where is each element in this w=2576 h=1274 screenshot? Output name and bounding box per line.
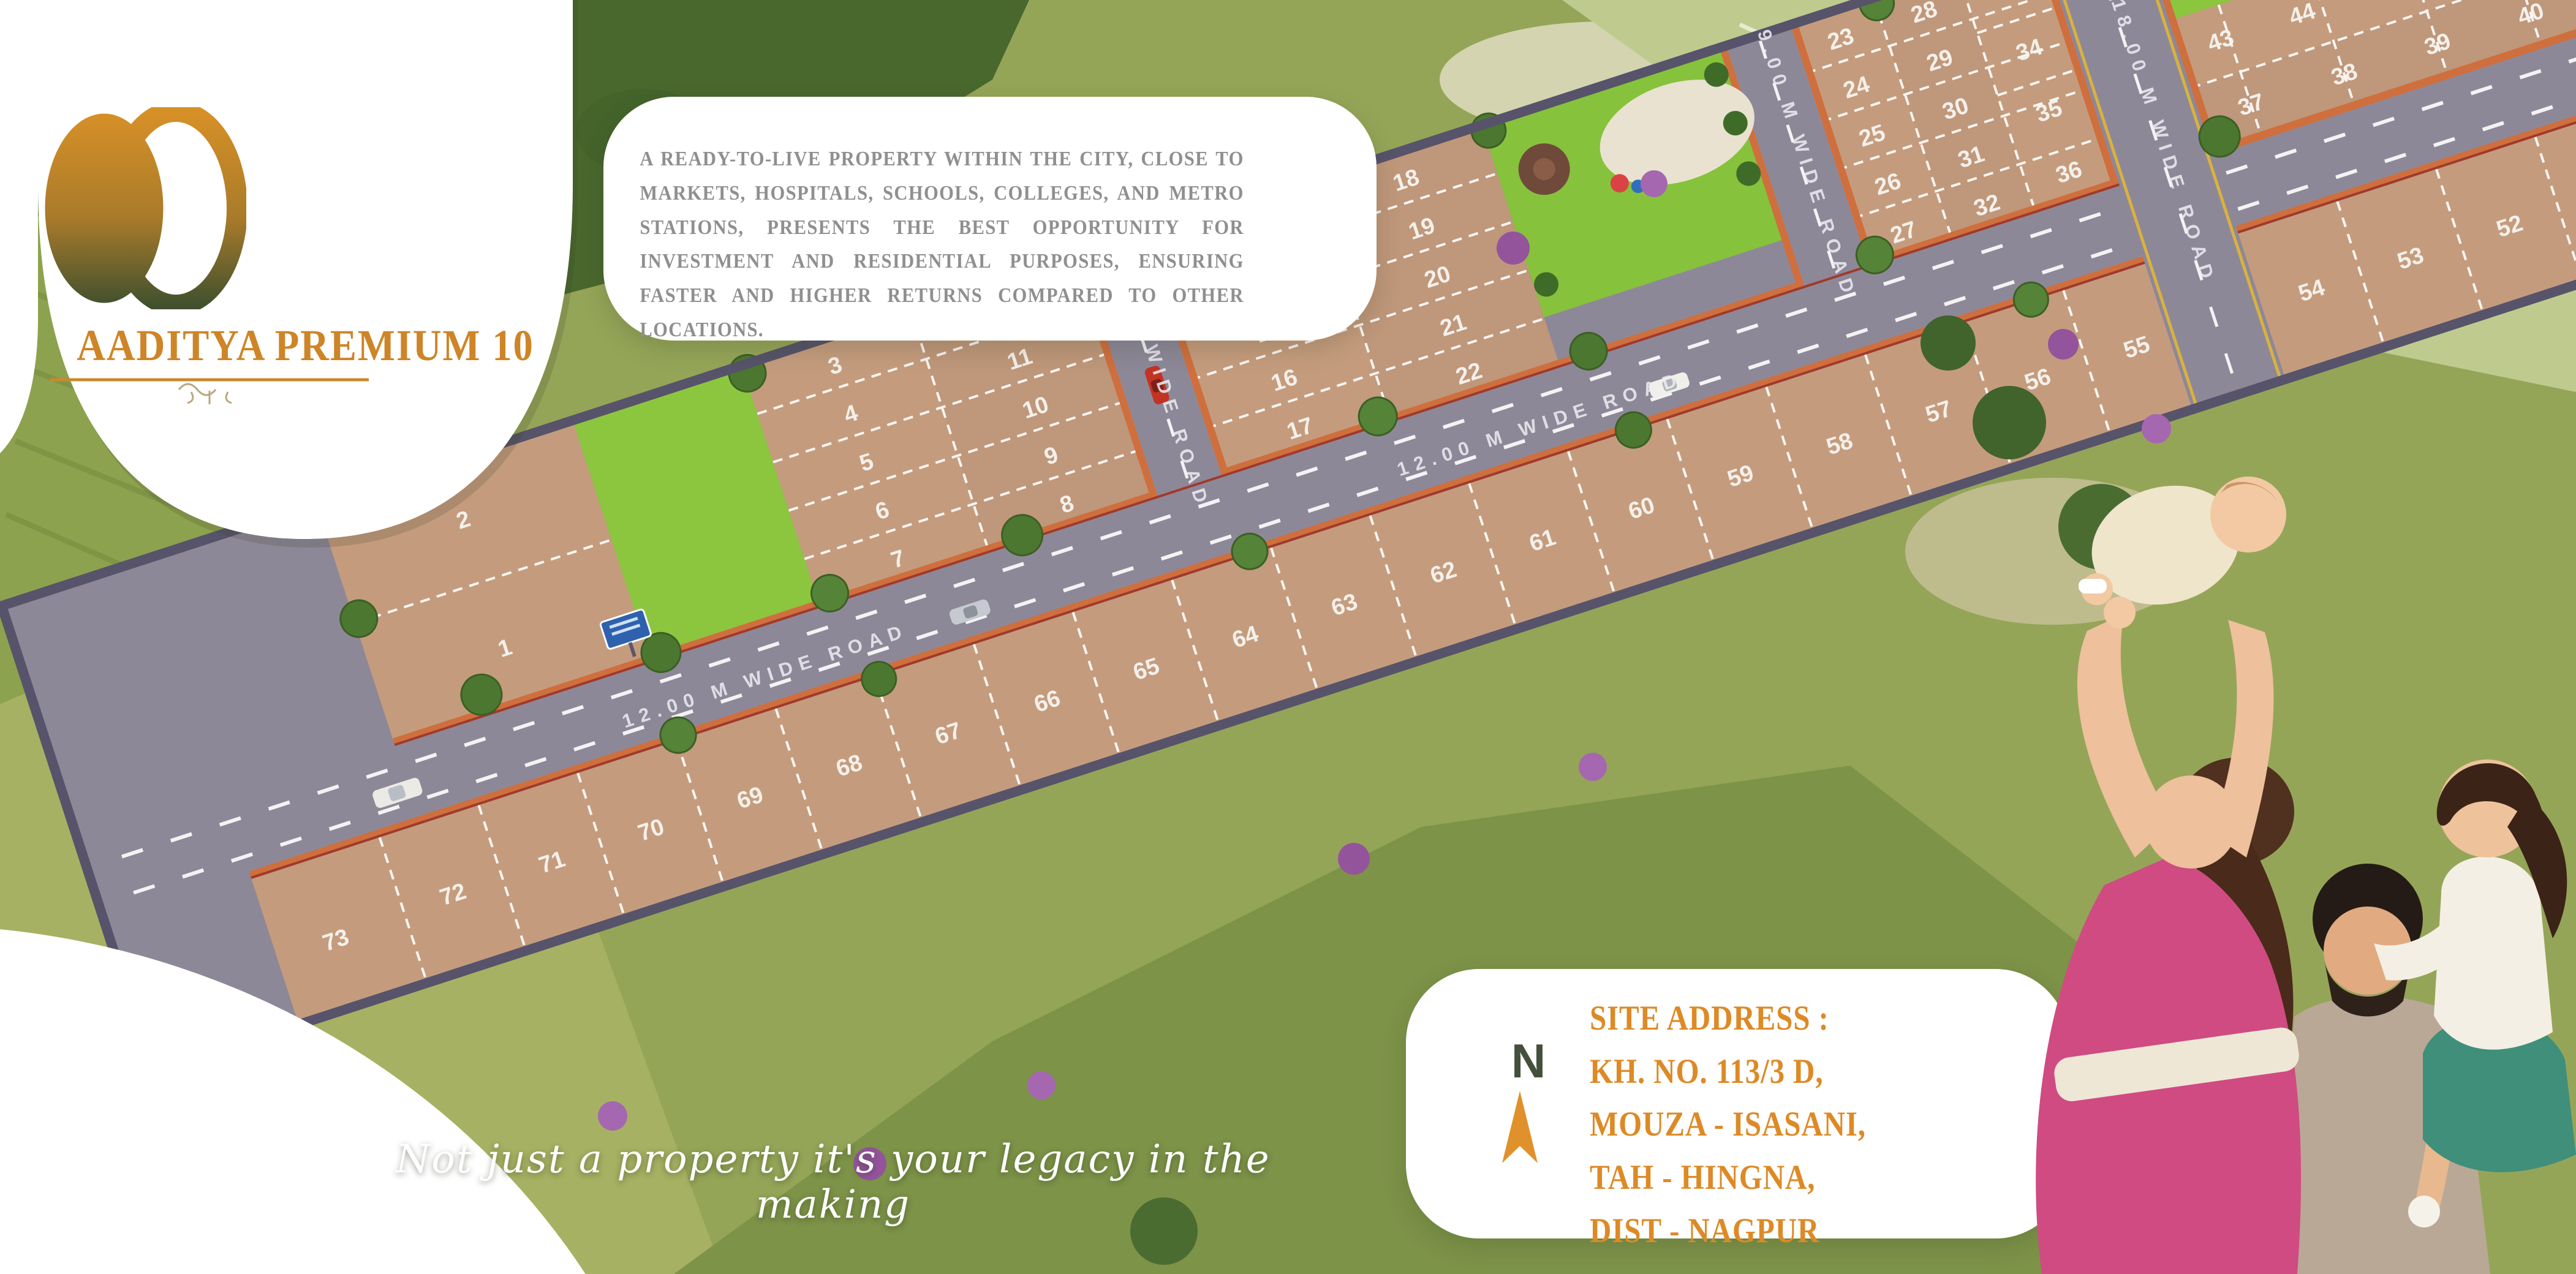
brochure-page: 18.00 M WIDE D.P. ROAD <box>0 0 2576 1274</box>
tagline-text: Not just a property it's your legacy in … <box>368 1137 1299 1227</box>
intro-text: A READY-TO-LIVE PROPERTY WITHIN THE CITY… <box>603 97 1287 347</box>
north-compass: N <box>1501 1039 1556 1164</box>
baby-figure <box>2079 470 2286 628</box>
brand-logo-icon <box>38 107 246 309</box>
mother-figure <box>2036 614 2301 1274</box>
logo-flourish <box>38 371 381 408</box>
site-address-line: TAH - HINGNA, <box>1590 1151 1866 1205</box>
site-address-line: DIST - NAGPUR <box>1590 1205 1866 1258</box>
compass-n-label: N <box>1501 1039 1556 1082</box>
brand-name: AADITYA PREMIUM 10 <box>65 320 546 371</box>
north-arrow-icon <box>1501 1091 1539 1164</box>
logo-card: AADITYA PREMIUM 10 <box>38 0 573 539</box>
family-photo <box>1902 429 2576 1274</box>
intro-card: A READY-TO-LIVE PROPERTY WITHIN THE CITY… <box>603 97 1377 341</box>
site-address-text: SITE ADDRESS : KH. NO. 113/3 D, MOUZA - … <box>1590 992 1866 1257</box>
site-address-heading: SITE ADDRESS : <box>1590 992 1866 1046</box>
site-address-line: MOUZA - ISASANI, <box>1590 1098 1866 1151</box>
site-address-line: KH. NO. 113/3 D, <box>1590 1046 1866 1099</box>
